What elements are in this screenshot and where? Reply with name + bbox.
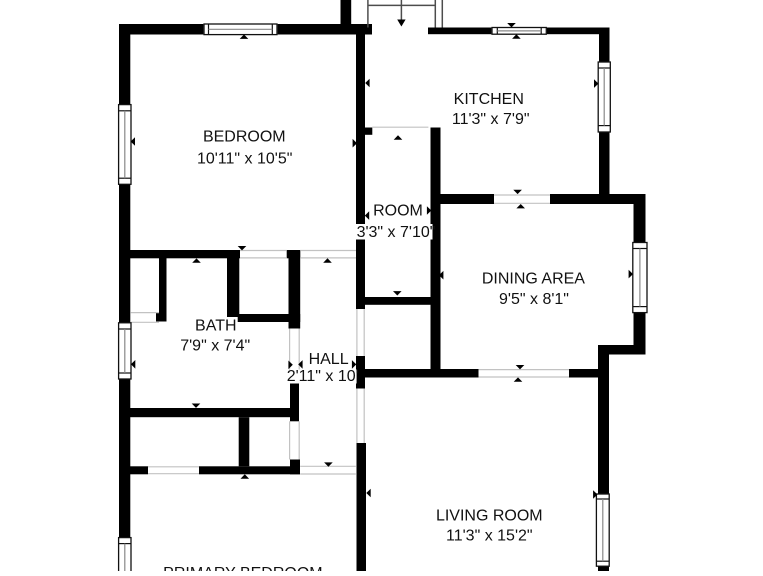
svg-text:BEDROOM: BEDROOM — [203, 129, 286, 146]
svg-text:BATH: BATH — [195, 317, 236, 334]
svg-text:PRIMARY BEDROOM: PRIMARY BEDROOM — [163, 565, 322, 571]
svg-text:9'5" x 8'1": 9'5" x 8'1" — [499, 291, 569, 308]
svg-text:11'3" x 7'9": 11'3" x 7'9" — [452, 111, 530, 128]
svg-text:KITCHEN: KITCHEN — [454, 91, 524, 108]
svg-text:11'3" x 15'2": 11'3" x 15'2" — [446, 527, 533, 544]
svg-text:7'9" x 7'4": 7'9" x 7'4" — [180, 338, 250, 355]
svg-text:10'11" x 10'5": 10'11" x 10'5" — [197, 151, 292, 168]
svg-text:3'3" x 7'10": 3'3" x 7'10" — [357, 224, 436, 241]
svg-text:DINING AREA: DINING AREA — [482, 270, 585, 287]
svg-text:2'11" x 10': 2'11" x 10' — [287, 368, 359, 385]
svg-text:LIVING ROOM: LIVING ROOM — [436, 508, 543, 525]
svg-text:ROOM: ROOM — [373, 202, 423, 219]
svg-text:HALL: HALL — [309, 351, 349, 368]
